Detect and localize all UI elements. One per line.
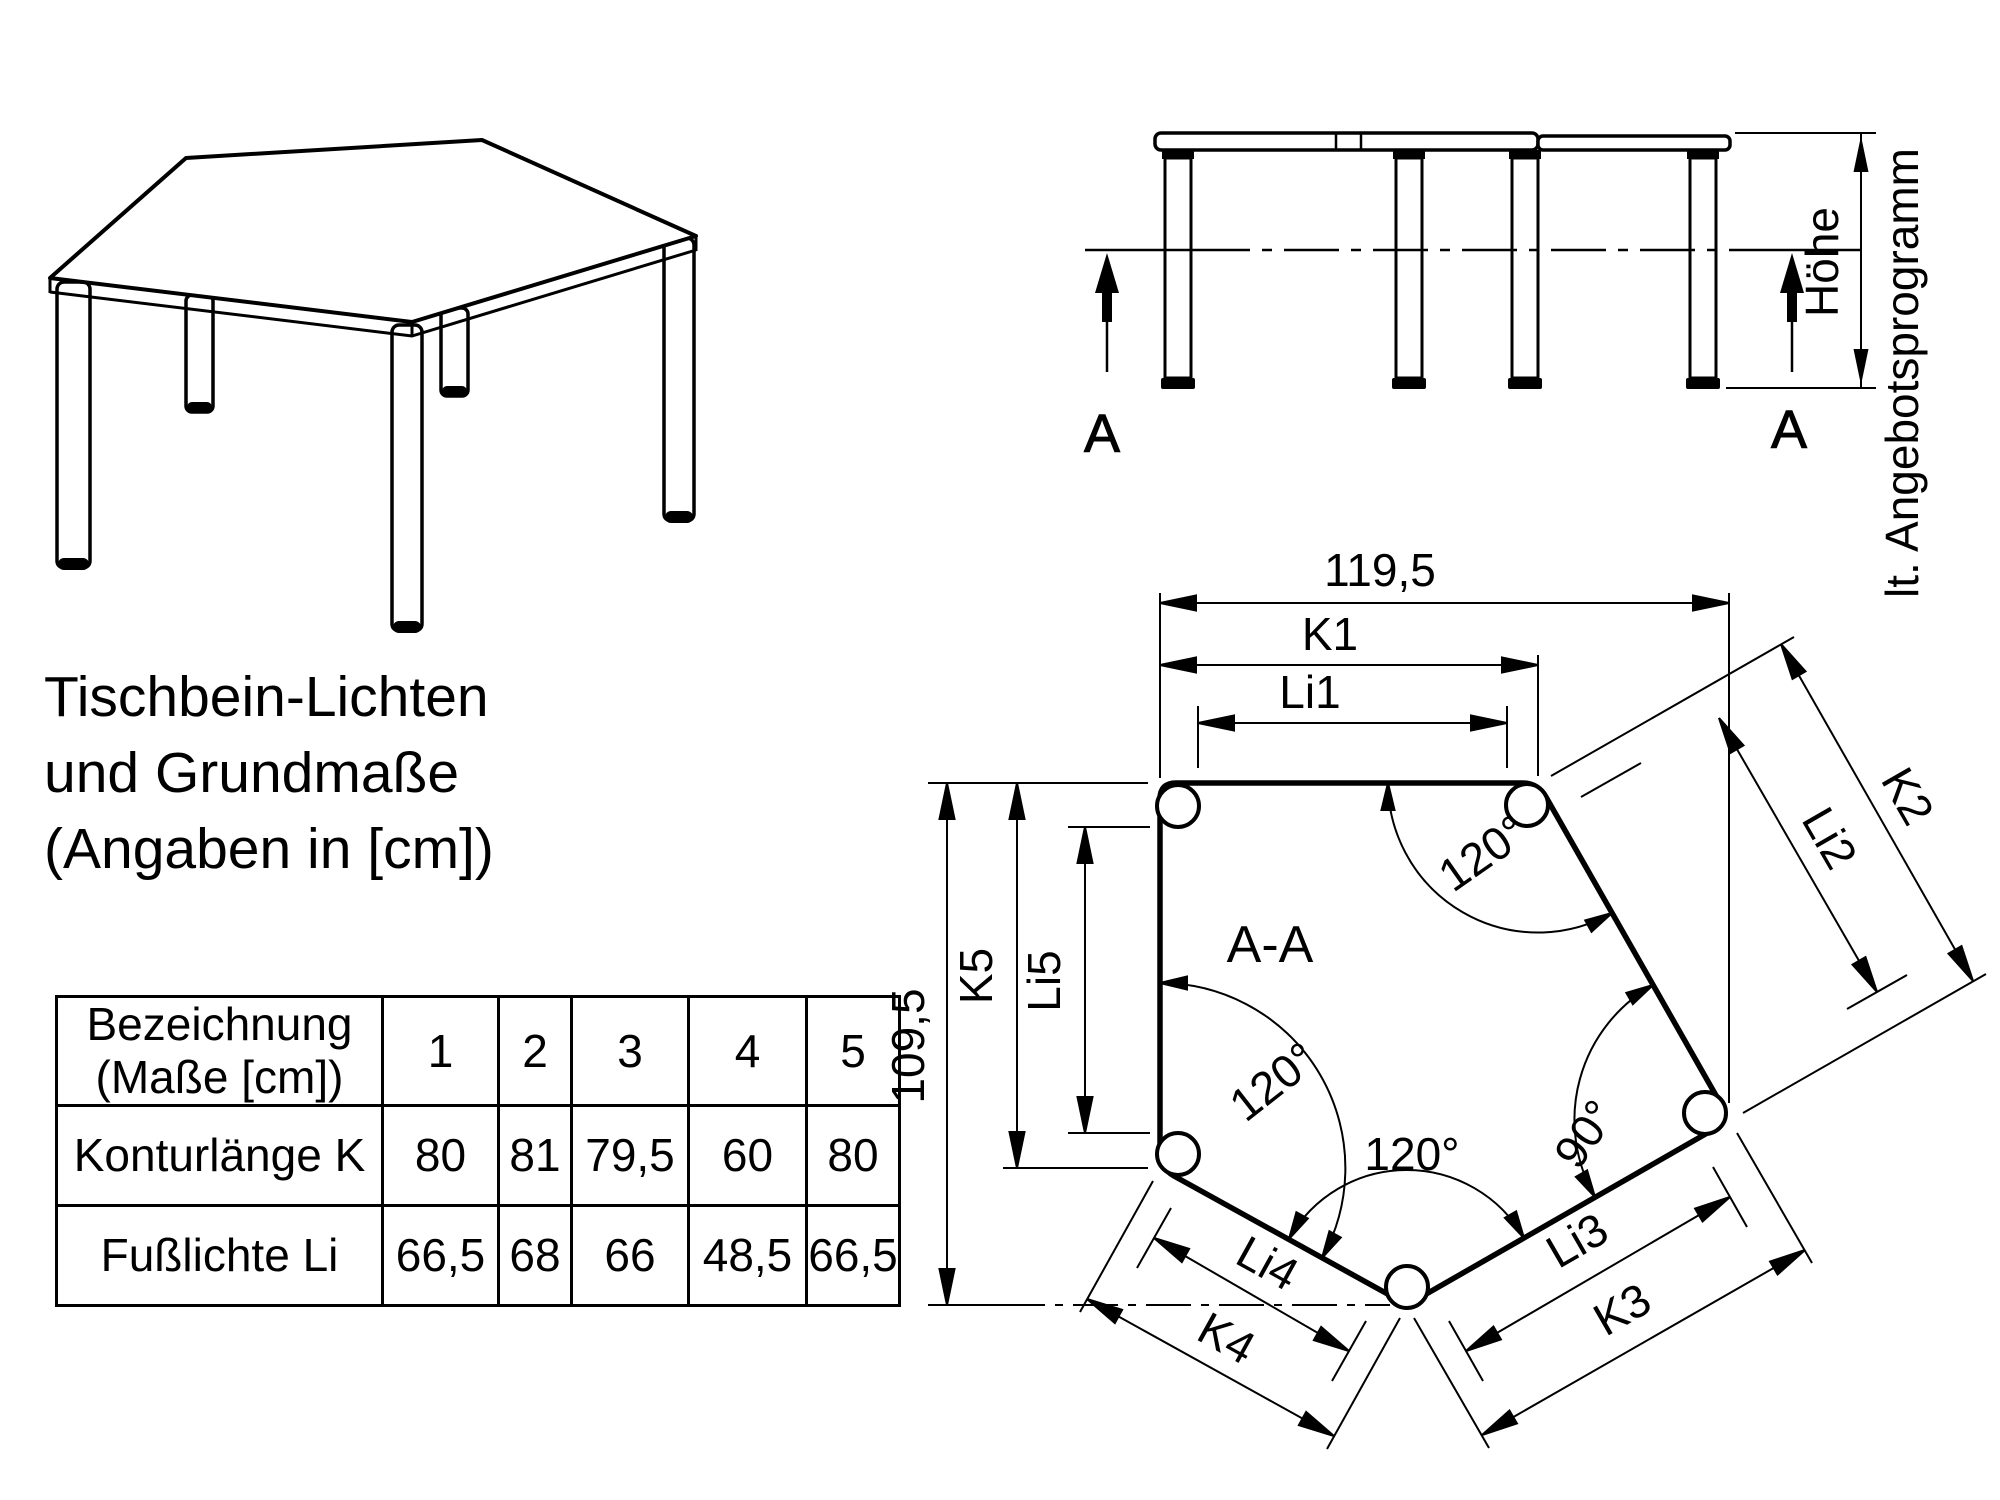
- elev-tabletop-right: [1538, 136, 1730, 150]
- kontur-value-3: 79,5: [572, 1105, 689, 1205]
- height-label: Höhe: [1796, 207, 1848, 317]
- dim-li5: Li5: [1018, 950, 1070, 1011]
- section-label-right: A: [1771, 400, 1807, 460]
- section-arrow-left: A: [1084, 253, 1120, 464]
- table-col-1: 1: [383, 997, 499, 1106]
- drawing-title-line1: Tischbein-Lichten: [44, 660, 494, 736]
- iso-leg-feet: [58, 386, 693, 633]
- elev-legs: [1165, 158, 1716, 378]
- dim-k3: K3: [1585, 1273, 1660, 1346]
- drawing-title-line2: und Grundmaße: [44, 736, 494, 812]
- height-note: lt. Angebotsprogramm: [1876, 148, 1928, 598]
- iso-leg-front: [392, 325, 422, 631]
- leg-hole-top-left: [1157, 785, 1199, 827]
- section-label-left: A: [1084, 404, 1120, 464]
- plan-section-title: A-A: [1227, 916, 1314, 974]
- angle-label-bottom: 120°: [1364, 1128, 1459, 1180]
- dimension-table: Bezeichnung (Maße [cm]) 1 2 3 4 5 Kontur…: [55, 995, 901, 1307]
- fusslichte-value-3: 66: [572, 1205, 689, 1305]
- dim-overall-width: 119,5: [1324, 544, 1436, 596]
- elevation-view: A A Höhe lt. Angebotsprogramm: [1084, 133, 1928, 598]
- fusslichte-value-5: 66,5: [807, 1205, 900, 1305]
- fusslichte-value-4: 48,5: [689, 1205, 807, 1305]
- table-header-label-line2: (Maße [cm]): [58, 1051, 381, 1104]
- fusslichte-value-2: 68: [499, 1205, 572, 1305]
- elev-tabletop: [1155, 133, 1538, 150]
- technical-drawing-sheet: A A Höhe lt. Angebotsprogramm A: [0, 0, 2000, 1500]
- row-kontur-label: Konturlänge K: [57, 1105, 383, 1205]
- dim-li1: Li1: [1279, 666, 1340, 718]
- kontur-value-2: 81: [499, 1105, 572, 1205]
- leg-hole-right: [1684, 1092, 1726, 1134]
- iso-leg-front-left: [57, 282, 90, 568]
- drawing-title-line3: (Angaben in [cm]): [44, 812, 494, 888]
- leg-hole-bottom: [1386, 1266, 1428, 1308]
- dim-k1: K1: [1302, 608, 1358, 660]
- kontur-value-4: 60: [689, 1105, 807, 1205]
- fusslichte-value-1: 66,5: [383, 1205, 499, 1305]
- table-row-kontur: Konturlänge K 80 81 79,5 60 80: [57, 1105, 900, 1205]
- isometric-table-view: [50, 140, 696, 633]
- dim-k5: K5: [950, 948, 1002, 1004]
- table-header-row: Bezeichnung (Maße [cm]) 1 2 3 4 5: [57, 997, 900, 1106]
- dim-k4: K4: [1190, 1302, 1264, 1375]
- iso-tabletop-face: [50, 140, 696, 322]
- table-row-fusslichte: Fußlichte Li 66,5 68 66 48,5 66,5: [57, 1205, 900, 1305]
- table-col-5: 5: [807, 997, 900, 1106]
- elev-leg-caps: [1161, 150, 1720, 389]
- leg-hole-bottom-left: [1157, 1133, 1199, 1175]
- table-col-4: 4: [689, 997, 807, 1106]
- row-fusslichte-label: Fußlichte Li: [57, 1205, 383, 1305]
- table-col-2: 2: [499, 997, 572, 1106]
- kontur-value-5: 80: [807, 1105, 900, 1205]
- table-col-3: 3: [572, 997, 689, 1106]
- table-header-label-line1: Bezeichnung: [58, 998, 381, 1051]
- drawing-title: Tischbein-Lichten und Grundmaße (Angaben…: [44, 660, 494, 887]
- iso-leg-right: [664, 238, 694, 521]
- plan-view: A-A 119,5 K1 Li1: [882, 544, 1986, 1449]
- kontur-value-1: 80: [383, 1105, 499, 1205]
- table-header-label: Bezeichnung (Maße [cm]): [57, 997, 383, 1106]
